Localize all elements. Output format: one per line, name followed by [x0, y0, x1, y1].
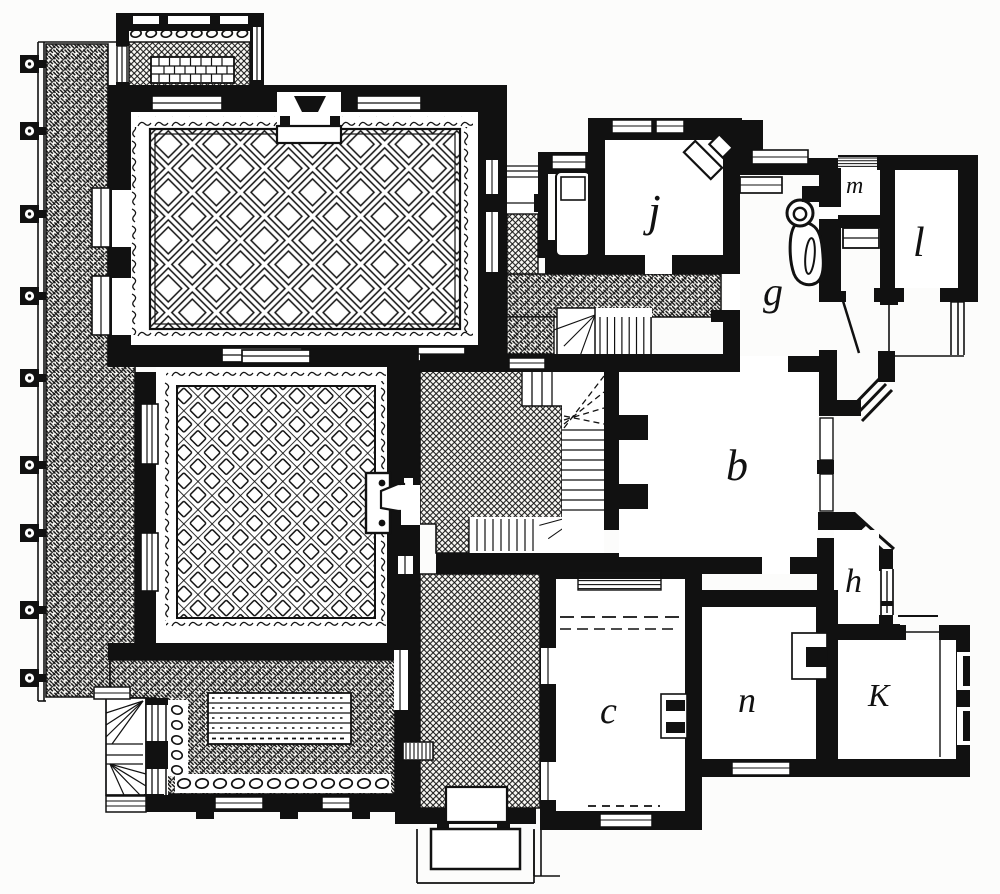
svg-text:n: n [738, 680, 756, 720]
svg-text:g: g [763, 269, 783, 314]
svg-text:h: h [845, 563, 862, 600]
svg-text:m: m [846, 173, 863, 199]
svg-text:l: l [913, 220, 925, 266]
svg-text:K: K [867, 677, 891, 713]
svg-text:c: c [600, 690, 617, 732]
svg-text:b: b [726, 441, 748, 490]
